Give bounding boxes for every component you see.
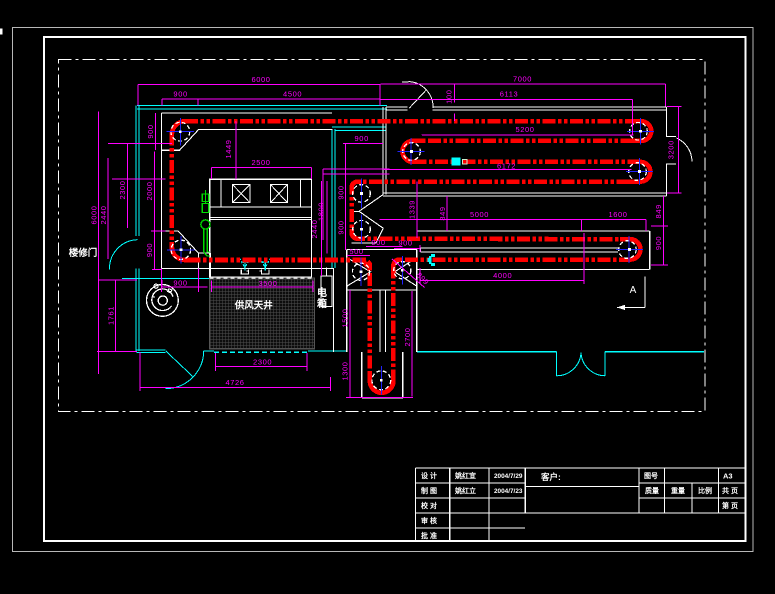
svg-text:2300: 2300 [253,358,272,367]
svg-text:100: 100 [445,90,454,104]
svg-text:2004/7/29: 2004/7/29 [494,473,523,480]
svg-text:A: A [630,285,637,296]
svg-text:2300: 2300 [118,180,127,199]
svg-text:审 核: 审 核 [421,516,437,525]
svg-text:900: 900 [355,134,369,143]
svg-text:共 页: 共 页 [722,486,738,495]
svg-text:姚红立: 姚红立 [454,486,476,495]
svg-text:900: 900 [371,238,385,247]
svg-text:1761: 1761 [106,306,115,325]
svg-text:制 图: 制 图 [421,486,437,495]
svg-text:设 计: 设 计 [421,471,437,480]
svg-text:4726: 4726 [225,378,244,387]
svg-text:900: 900 [654,236,663,250]
svg-text:6172: 6172 [497,162,516,171]
svg-text:7000: 7000 [513,74,532,83]
svg-text:1800: 1800 [317,202,326,221]
svg-text:2440: 2440 [99,205,108,224]
svg-text:2500: 2500 [251,158,270,167]
svg-text:2000: 2000 [145,181,154,200]
svg-text:2700: 2700 [403,327,412,346]
svg-text:第 页: 第 页 [722,501,738,510]
svg-text:A3: A3 [723,472,733,481]
svg-text:1300: 1300 [341,361,350,380]
svg-text:供风天井: 供风天井 [234,300,274,312]
svg-text:电: 电 [317,286,327,299]
svg-text:900: 900 [398,239,412,248]
svg-text:质量: 质量 [645,486,659,495]
svg-text:900: 900 [146,124,155,138]
svg-text:900: 900 [173,89,187,98]
svg-text:6000: 6000 [90,205,99,224]
svg-text:849: 849 [654,204,663,218]
svg-text:1449: 1449 [224,139,233,158]
svg-text:比例: 比例 [698,486,712,495]
svg-text:1339: 1339 [407,200,416,219]
svg-text:4500: 4500 [283,89,302,98]
svg-text:5000: 5000 [470,210,489,219]
svg-text:重量: 重量 [671,486,685,495]
svg-text:900: 900 [337,185,346,199]
svg-text:1600: 1600 [608,210,627,219]
svg-text:500: 500 [349,247,363,256]
svg-text:箱: 箱 [317,297,327,310]
svg-text:900: 900 [145,243,154,257]
svg-text:2004/7/23: 2004/7/23 [494,488,523,495]
svg-text:900: 900 [173,278,187,287]
svg-text:批 准: 批 准 [421,531,437,540]
svg-text:6113: 6113 [500,90,519,99]
svg-text:3200: 3200 [667,140,676,159]
svg-text:2440: 2440 [310,219,319,238]
svg-text:图号: 图号 [644,471,658,480]
svg-text:900: 900 [337,220,346,234]
svg-text:客户:: 客户: [540,472,561,482]
svg-text:6000: 6000 [251,75,270,84]
svg-text:校 对: 校 对 [421,501,437,510]
svg-text:849: 849 [438,206,447,220]
svg-text:楼修门: 楼修门 [69,247,98,259]
svg-text:1500: 1500 [341,308,350,327]
svg-text:5200: 5200 [515,125,534,134]
svg-text:3500: 3500 [258,279,277,288]
svg-text:姚红宜: 姚红宜 [454,471,476,480]
svg-text:4000: 4000 [493,271,512,280]
